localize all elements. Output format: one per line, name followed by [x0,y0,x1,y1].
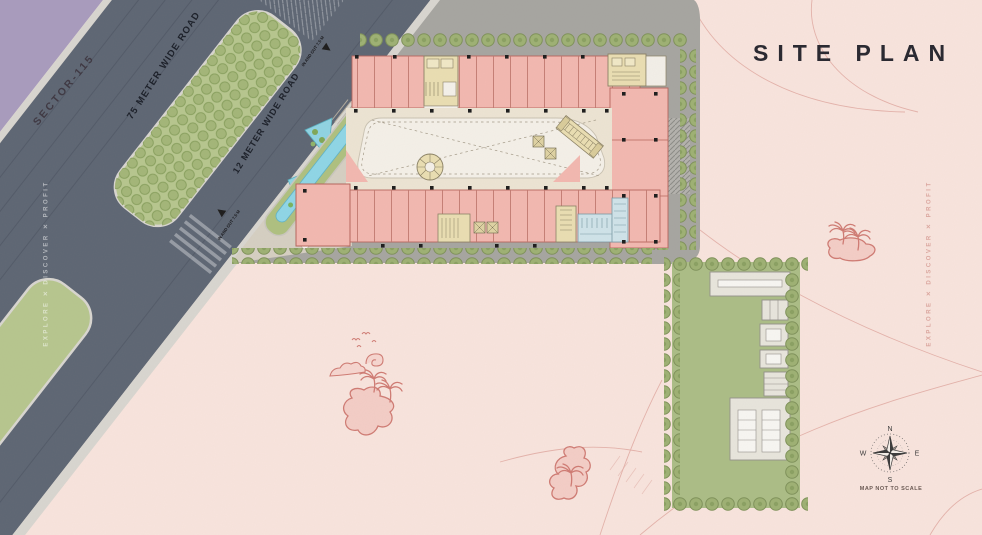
site-plan-canvas: IN AND OUT 7.5 M IN AND OUT 7.5 M N E S … [0,0,982,535]
site-plan-drawing: IN AND OUT 7.5 M IN AND OUT 7.5 M N E S … [0,0,982,535]
paper-texture-overlay [0,0,982,535]
